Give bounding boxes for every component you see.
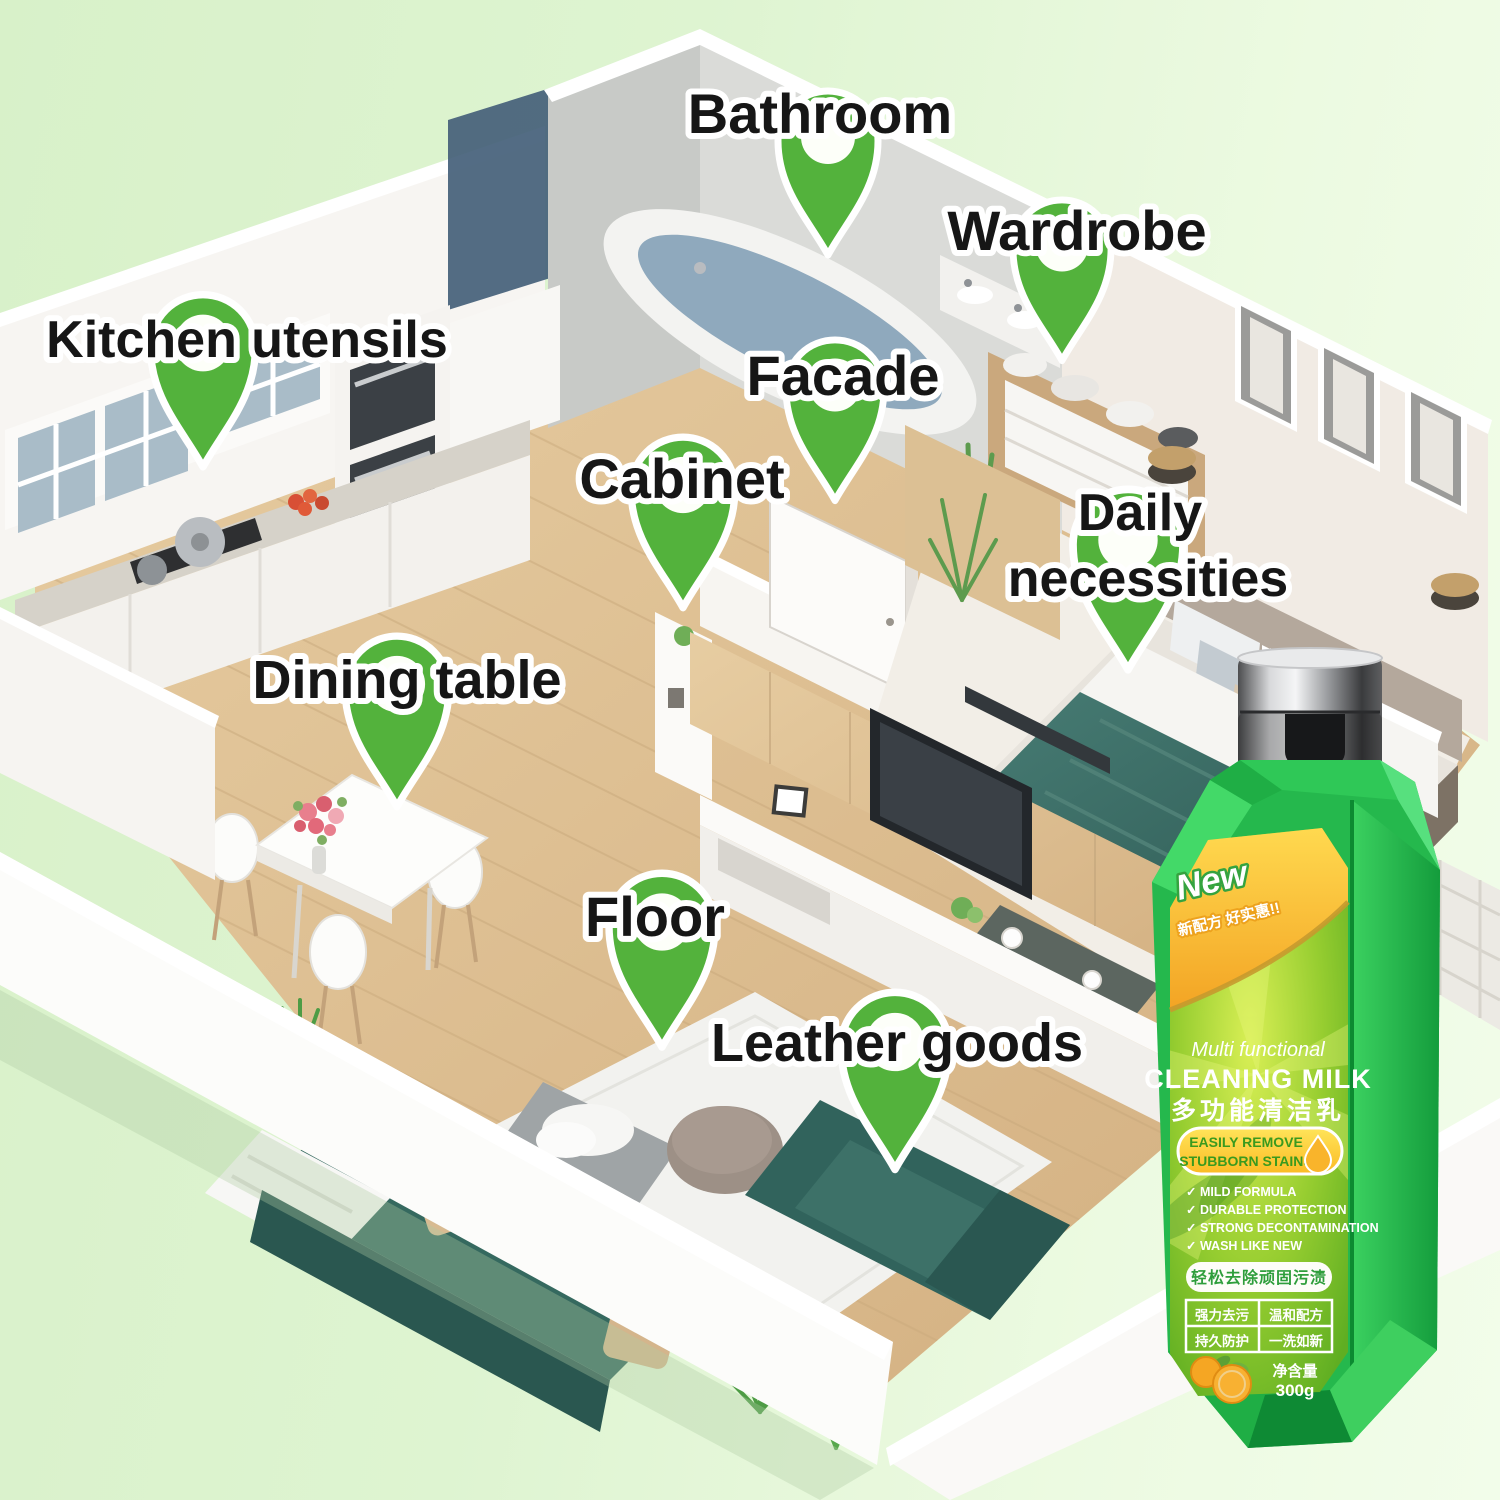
label-leather-goods: Leather goods — [711, 1013, 1083, 1073]
benefit-grid: 强力去污 温和配方 持久防护 一洗如新 — [1186, 1300, 1332, 1352]
pan-lid — [137, 555, 167, 585]
grid-cell-2: 温和配方 — [1269, 1307, 1323, 1323]
bedside-stool-left — [1148, 446, 1196, 470]
grid-cell-4: 一洗如新 — [1269, 1333, 1323, 1349]
feature-2: ✓ DURABLE PROTECTION — [1186, 1203, 1346, 1217]
net-weight-label: 净含量 — [1272, 1362, 1317, 1380]
grid-cell-1: 强力去污 — [1195, 1307, 1249, 1323]
feature-1: ✓ MILD FORMULA — [1186, 1185, 1296, 1199]
tub-faucet — [694, 262, 706, 274]
cap-flip-notch — [1285, 714, 1345, 766]
cn-pill-text: 轻松去除顽固污渍 — [1191, 1268, 1327, 1287]
door-knob — [886, 618, 894, 626]
label-floor: Floor — [585, 885, 725, 948]
brand-main: CLEANING MILK — [1144, 1064, 1371, 1094]
grid-cell-3: 持久防护 — [1195, 1333, 1249, 1349]
net-weight-value: 300g — [1276, 1381, 1315, 1400]
label-bathroom: Bathroom — [688, 82, 952, 145]
banner-line1: EASILY REMOVE — [1189, 1134, 1303, 1150]
photo-frame — [774, 787, 807, 816]
bedside-stool-right — [1431, 573, 1479, 597]
brand-cn: 多功能清洁乳 — [1171, 1096, 1345, 1125]
label-cabinet: Cabinet — [579, 447, 784, 510]
label-kitchen-utensils: Kitchen utensils — [46, 311, 448, 369]
label-necessities: necessities — [1008, 550, 1288, 608]
feature-3: ✓ STRONG DECONTAMINATION — [1186, 1221, 1379, 1235]
ad-image: Bathroom Wardrobe Kitchen utensils Facad… — [0, 0, 1500, 1500]
brand-small: Multi functional — [1191, 1039, 1325, 1061]
label-dining-table: Dining table — [253, 650, 562, 710]
banner-line2: STUBBORN STAINS — [1179, 1153, 1313, 1169]
label-wardrobe: Wardrobe — [947, 199, 1206, 262]
label-daily: Daily — [1078, 484, 1202, 542]
label-facade: Facade — [747, 344, 940, 407]
feature-4: ✓ WASH LIKE NEW — [1186, 1239, 1302, 1253]
scene-illustration: Bathroom Wardrobe Kitchen utensils Facad… — [0, 0, 1500, 1500]
